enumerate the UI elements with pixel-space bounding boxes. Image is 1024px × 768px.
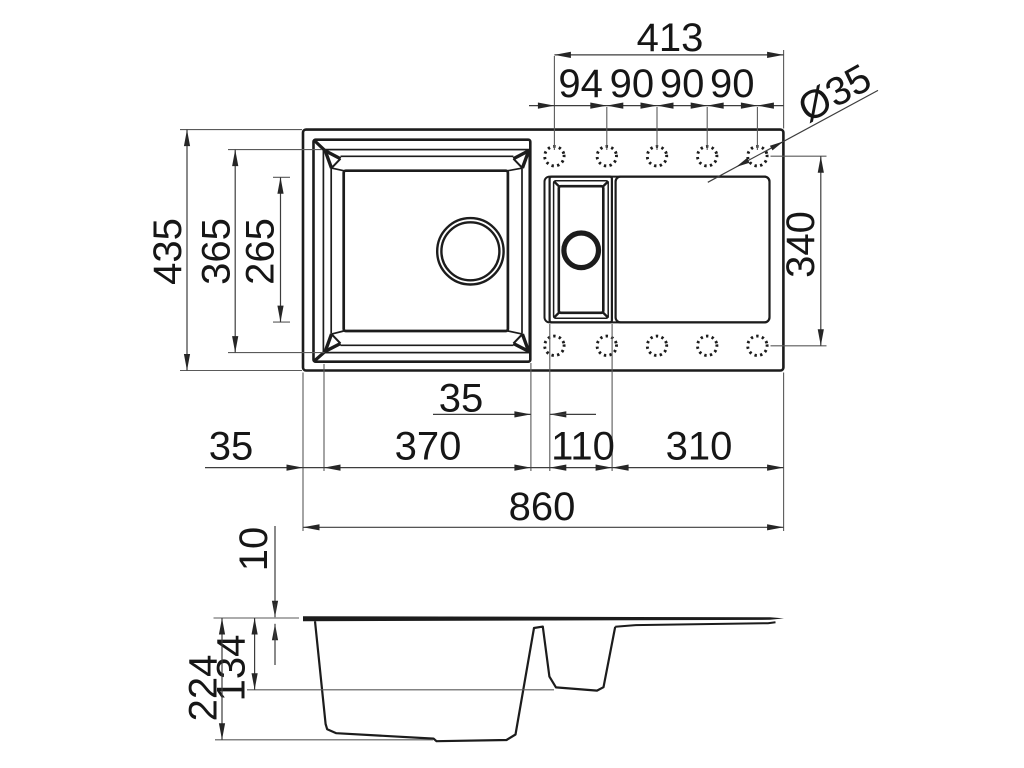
svg-text:310: 310 [666, 425, 733, 469]
svg-text:413: 413 [637, 16, 704, 60]
svg-text:90: 90 [710, 62, 755, 106]
svg-text:10: 10 [232, 527, 276, 572]
svg-text:860: 860 [509, 485, 576, 529]
svg-text:224: 224 [182, 655, 226, 722]
svg-text:35: 35 [209, 425, 254, 469]
svg-text:265: 265 [239, 218, 283, 285]
svg-text:340: 340 [779, 211, 823, 278]
svg-text:94: 94 [558, 62, 603, 106]
svg-text:365: 365 [195, 218, 239, 285]
svg-text:435: 435 [146, 218, 190, 285]
svg-text:90: 90 [610, 62, 655, 106]
svg-text:110: 110 [551, 425, 615, 469]
svg-text:370: 370 [395, 425, 462, 469]
svg-text:35: 35 [439, 377, 484, 421]
svg-text:90: 90 [660, 62, 705, 106]
